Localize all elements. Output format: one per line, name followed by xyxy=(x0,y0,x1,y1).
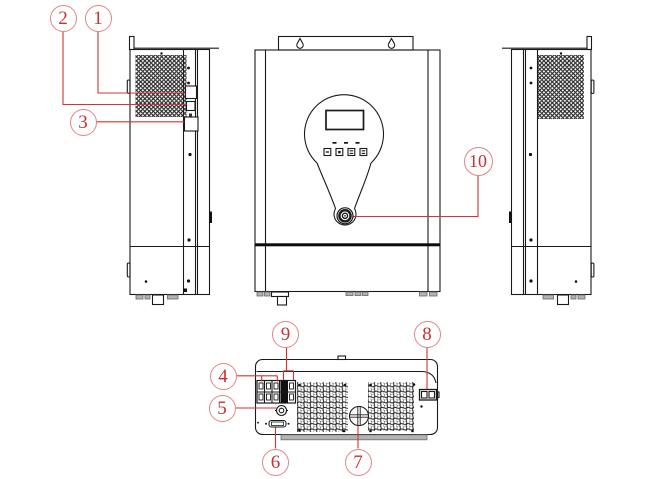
keyhole-slot-icon xyxy=(297,39,303,49)
callout-9: 9 xyxy=(272,321,299,348)
breaker-port-3 xyxy=(185,117,199,131)
callout-10: 10 xyxy=(464,147,493,176)
knob-side-profile xyxy=(509,212,512,224)
front-panel xyxy=(255,50,440,292)
edge-bump xyxy=(591,80,594,94)
function-knob xyxy=(337,208,353,224)
inverter-views-diagram: 1 2 3 4 5 6 7 8 9 10 xyxy=(0,0,657,479)
front-divider-bar xyxy=(255,243,440,246)
view-front xyxy=(255,37,440,306)
terminal-block xyxy=(257,381,296,404)
callout-1: 1 xyxy=(85,5,112,32)
callout-2: 2 xyxy=(50,5,77,32)
keyhole-slot-icon xyxy=(388,39,394,49)
led-indicators xyxy=(333,142,360,144)
view-right-side xyxy=(502,37,594,305)
callout-6: 6 xyxy=(262,449,289,476)
cable-knockout xyxy=(350,407,369,426)
mounting-tab-icon xyxy=(587,37,592,50)
callout-5: 5 xyxy=(209,395,236,422)
fan-vent-icon xyxy=(368,382,414,431)
leader-line-10 xyxy=(354,176,479,217)
stand-rail xyxy=(281,435,427,440)
control-buttons xyxy=(324,149,367,156)
comm-port-1 xyxy=(186,86,197,99)
edge-bump xyxy=(127,263,130,277)
leader-line-9 xyxy=(284,348,294,380)
edge-bump xyxy=(127,80,130,94)
view-left-side xyxy=(127,37,219,305)
lcd-display xyxy=(326,111,364,130)
teardrop-bezel xyxy=(304,95,383,225)
comm-port-2 xyxy=(187,102,196,111)
callout-8: 8 xyxy=(414,321,441,348)
bottom-feet xyxy=(136,295,178,305)
edge-bump xyxy=(591,263,594,277)
callout-3: 3 xyxy=(70,109,97,136)
fan-vent-icon xyxy=(297,382,348,432)
bottom-feet xyxy=(257,292,437,305)
knob-side-profile xyxy=(210,212,213,224)
line-art-canvas xyxy=(0,0,657,479)
usb-port xyxy=(257,421,289,428)
mounting-tab-icon xyxy=(130,37,135,50)
round-socket xyxy=(275,406,288,416)
callout-7: 7 xyxy=(345,449,372,476)
circuit-breaker xyxy=(420,390,440,401)
view-bottom xyxy=(256,356,440,440)
callout-4: 4 xyxy=(210,363,237,390)
bottom-feet xyxy=(543,295,585,305)
